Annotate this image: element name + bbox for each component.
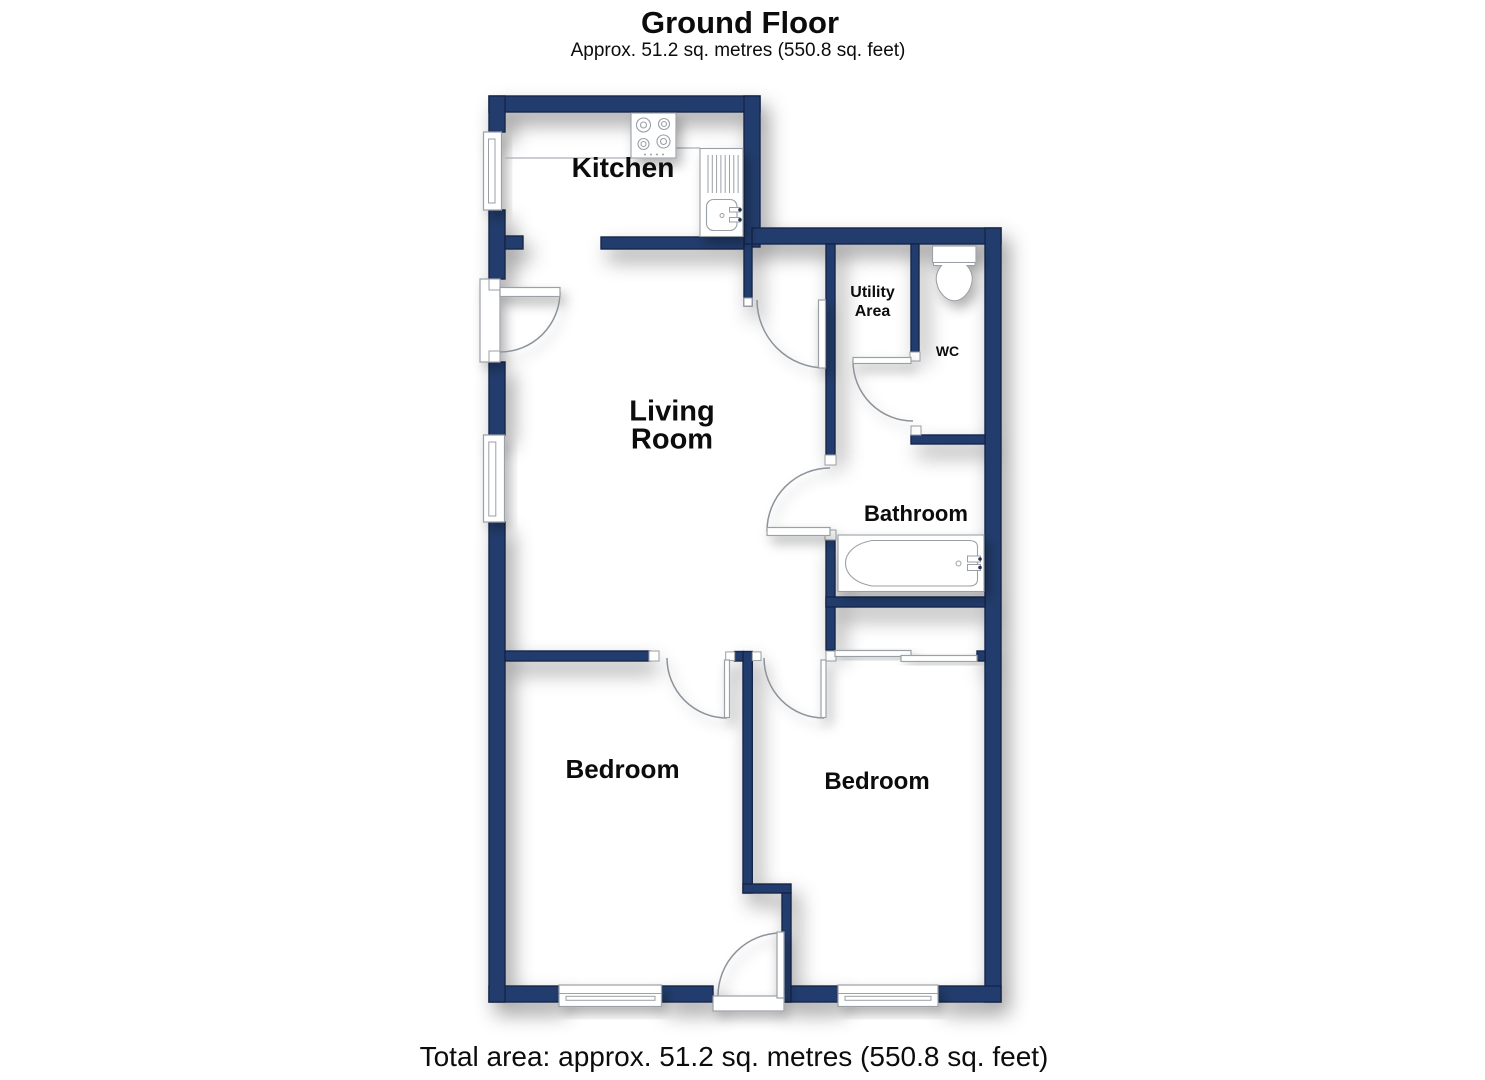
svg-text:WC: WC bbox=[936, 343, 959, 359]
svg-text:Bedroom: Bedroom bbox=[565, 754, 679, 784]
svg-text:Ground Floor: Ground Floor bbox=[641, 5, 839, 40]
svg-text:Room: Room bbox=[631, 424, 713, 456]
svg-text:Area: Area bbox=[855, 303, 891, 320]
svg-text:Approx. 51.2 sq. metres (550.8: Approx. 51.2 sq. metres (550.8 sq. feet) bbox=[571, 40, 906, 61]
svg-text:Kitchen: Kitchen bbox=[572, 152, 675, 183]
svg-text:Utility: Utility bbox=[850, 284, 895, 301]
svg-text:Total area: approx. 51.2 sq. m: Total area: approx. 51.2 sq. metres (550… bbox=[420, 1041, 1049, 1072]
svg-text:Bedroom: Bedroom bbox=[824, 768, 929, 795]
svg-text:Bathroom: Bathroom bbox=[864, 501, 968, 526]
